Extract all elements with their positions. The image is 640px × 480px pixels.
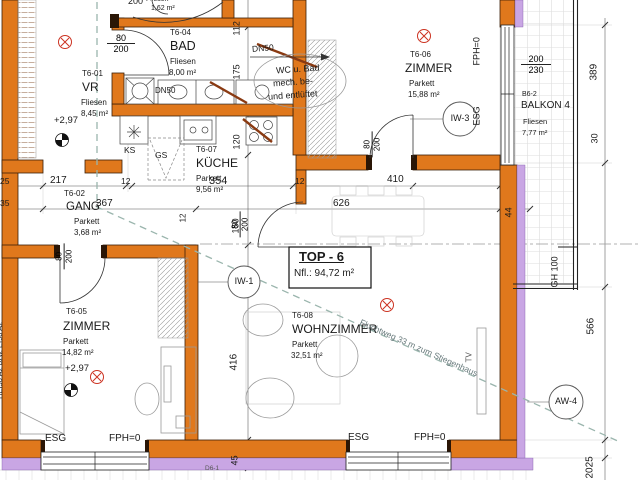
tag-iw3: IW-3 <box>445 114 475 123</box>
door-height: 200 <box>241 211 250 237</box>
wardrobe-sued-hatch <box>158 258 188 338</box>
room-name-vr: VR <box>82 81 99 94</box>
room-area-wohnzimmer: 32,51 m² <box>291 352 323 360</box>
window-balcony <box>501 25 514 165</box>
door-width: 80 <box>363 131 373 157</box>
level-vr: +2,97 <box>54 116 78 126</box>
room-name-gang: GANG <box>66 201 100 213</box>
door-width: 80 <box>107 33 135 44</box>
door-height: 200 <box>373 131 382 157</box>
glass-esg-right: ESG <box>473 106 482 125</box>
window-bottom-left <box>41 452 149 470</box>
room-id-kueche: T6-07 <box>196 146 217 154</box>
window-size-balkon: 200 230 <box>521 54 551 76</box>
room-name-zimmer-sued: ZIMMER <box>63 320 110 333</box>
unit-title: TOP - 6 <box>299 250 344 264</box>
room-floor-vr: Fliesen <box>81 99 107 107</box>
dim-566: 566 <box>587 318 598 335</box>
room-name-balkon: BALKON 4 <box>521 101 570 112</box>
room-area-zimmer-sued: 14,82 m² <box>62 349 94 357</box>
glass-esg-2: ESG <box>348 433 369 444</box>
dim-30: 30 <box>591 133 600 143</box>
room-id-balkon: B6-2 <box>522 91 537 98</box>
dim-389: 389 <box>590 64 601 81</box>
glass-esg-1: ESG <box>45 434 66 445</box>
room-id-vr: T6-01 <box>82 70 103 78</box>
door-width: 80 <box>55 243 65 269</box>
tag-d6-1: D6-1 <box>205 466 219 473</box>
dn50-bad: DN50 <box>155 87 175 95</box>
desk-chair <box>135 383 159 415</box>
room-floor-wohnzimmer: Parkett <box>292 341 317 349</box>
glass-fph-right: FPH=0 <box>473 37 482 65</box>
dim-2025: 2025 <box>586 456 597 478</box>
room-floor-zimmer-nord: Parkett <box>409 80 434 88</box>
dim-410: 410 <box>387 175 404 186</box>
unit-net-area: Nfl.: 94,72 m² <box>294 269 354 280</box>
dim-626: 626 <box>333 199 350 210</box>
window-width: 200 <box>521 54 551 65</box>
dim-44: 44 <box>505 207 514 217</box>
dim-175: 175 <box>233 64 242 79</box>
room-area-gang: 3,68 m² <box>74 229 101 237</box>
level-zimmer-sued: +2,97 <box>65 364 89 374</box>
glass-gh100: GH 100 <box>551 256 560 287</box>
dim-217: 217 <box>50 176 67 187</box>
dim-35: 35 <box>0 199 9 208</box>
dn50-arrow-label: DN50 <box>252 43 274 54</box>
room-area-bad: 8,00 m² <box>169 69 196 77</box>
room-floor-gang: Parkett <box>74 218 99 226</box>
tag-iw1: IW-1 <box>229 277 259 286</box>
fridge-label: KS <box>124 146 135 155</box>
door-height: 200 <box>107 44 135 54</box>
room-floor-wctop: Fliesen <box>146 0 169 3</box>
dim-45: 45 <box>231 455 240 465</box>
room-name-bad: BAD <box>170 40 196 53</box>
dishwasher-label: GS <box>155 151 167 160</box>
pillow <box>23 353 61 367</box>
dining-chairs <box>340 186 412 246</box>
glass-fph-2: FPH=0 <box>414 433 445 444</box>
room-name-zimmer-nord: ZIMMER <box>405 62 452 75</box>
door-width: 80 <box>231 211 241 237</box>
room-id-wohnzimmer: T6-08 <box>292 312 313 320</box>
vr-shaft-hatch <box>18 0 36 158</box>
dim-367: 367 <box>96 199 113 210</box>
tv-label: TV <box>466 352 474 362</box>
window-bottom-right <box>346 452 451 470</box>
dim-12-wall: 12 <box>180 213 188 222</box>
room-floor-bad: Fliesen <box>170 58 196 66</box>
room-id-zimmer-sued: T6-05 <box>66 308 87 316</box>
dim-120: 120 <box>233 134 242 149</box>
door-size-zimmer-nord: 80 200 <box>363 131 382 157</box>
door-size-bad: 80 200 <box>107 33 135 55</box>
room-id-gang: T6-02 <box>64 190 85 198</box>
dim-112: 112 <box>233 21 242 35</box>
dim-25: 25 <box>0 177 9 186</box>
room-floor-zimmer-sued: Parkett <box>63 338 88 346</box>
room-id-zimmer-nord: T6-06 <box>410 51 431 59</box>
room-area-balkon: 7,77 m² <box>522 129 547 137</box>
dim-416: 416 <box>230 354 241 371</box>
floorplan-canvas: T6-01 VR Fliesen 8,45 m² +2,97 200 Flies… <box>0 0 640 480</box>
room-name-kueche: KÜCHE <box>196 157 238 170</box>
dim-354: 354 <box>209 176 227 188</box>
room-area-zimmer-nord: 15,88 m² <box>408 91 440 99</box>
room-area-vr: 8,45 m² <box>81 110 108 118</box>
door-height: 200 <box>65 243 74 269</box>
door-size-wohnzimmer: 80 200 <box>231 211 250 237</box>
fire-rating-label: HEI90 A2 bzw. EI90 A2 <box>0 322 4 399</box>
dim-12-a: 12 <box>121 177 130 186</box>
glass-fph-1: FPH=0 <box>109 434 140 445</box>
dim-12-b: 12 <box>295 177 304 186</box>
door-top-label: 200 <box>128 0 143 6</box>
door-size-zimmer-sued: 80 200 <box>55 243 74 269</box>
room-id-bad: T6-04 <box>170 29 191 37</box>
room-floor-balkon: Fliesen <box>523 118 547 126</box>
window-height: 230 <box>521 65 551 75</box>
armchair-1 <box>243 304 283 336</box>
armchair-2 <box>246 378 294 418</box>
room-area-wctop: 1,62 m² <box>151 5 175 12</box>
bed <box>20 350 64 434</box>
tag-aw4: AW-4 <box>551 397 581 406</box>
